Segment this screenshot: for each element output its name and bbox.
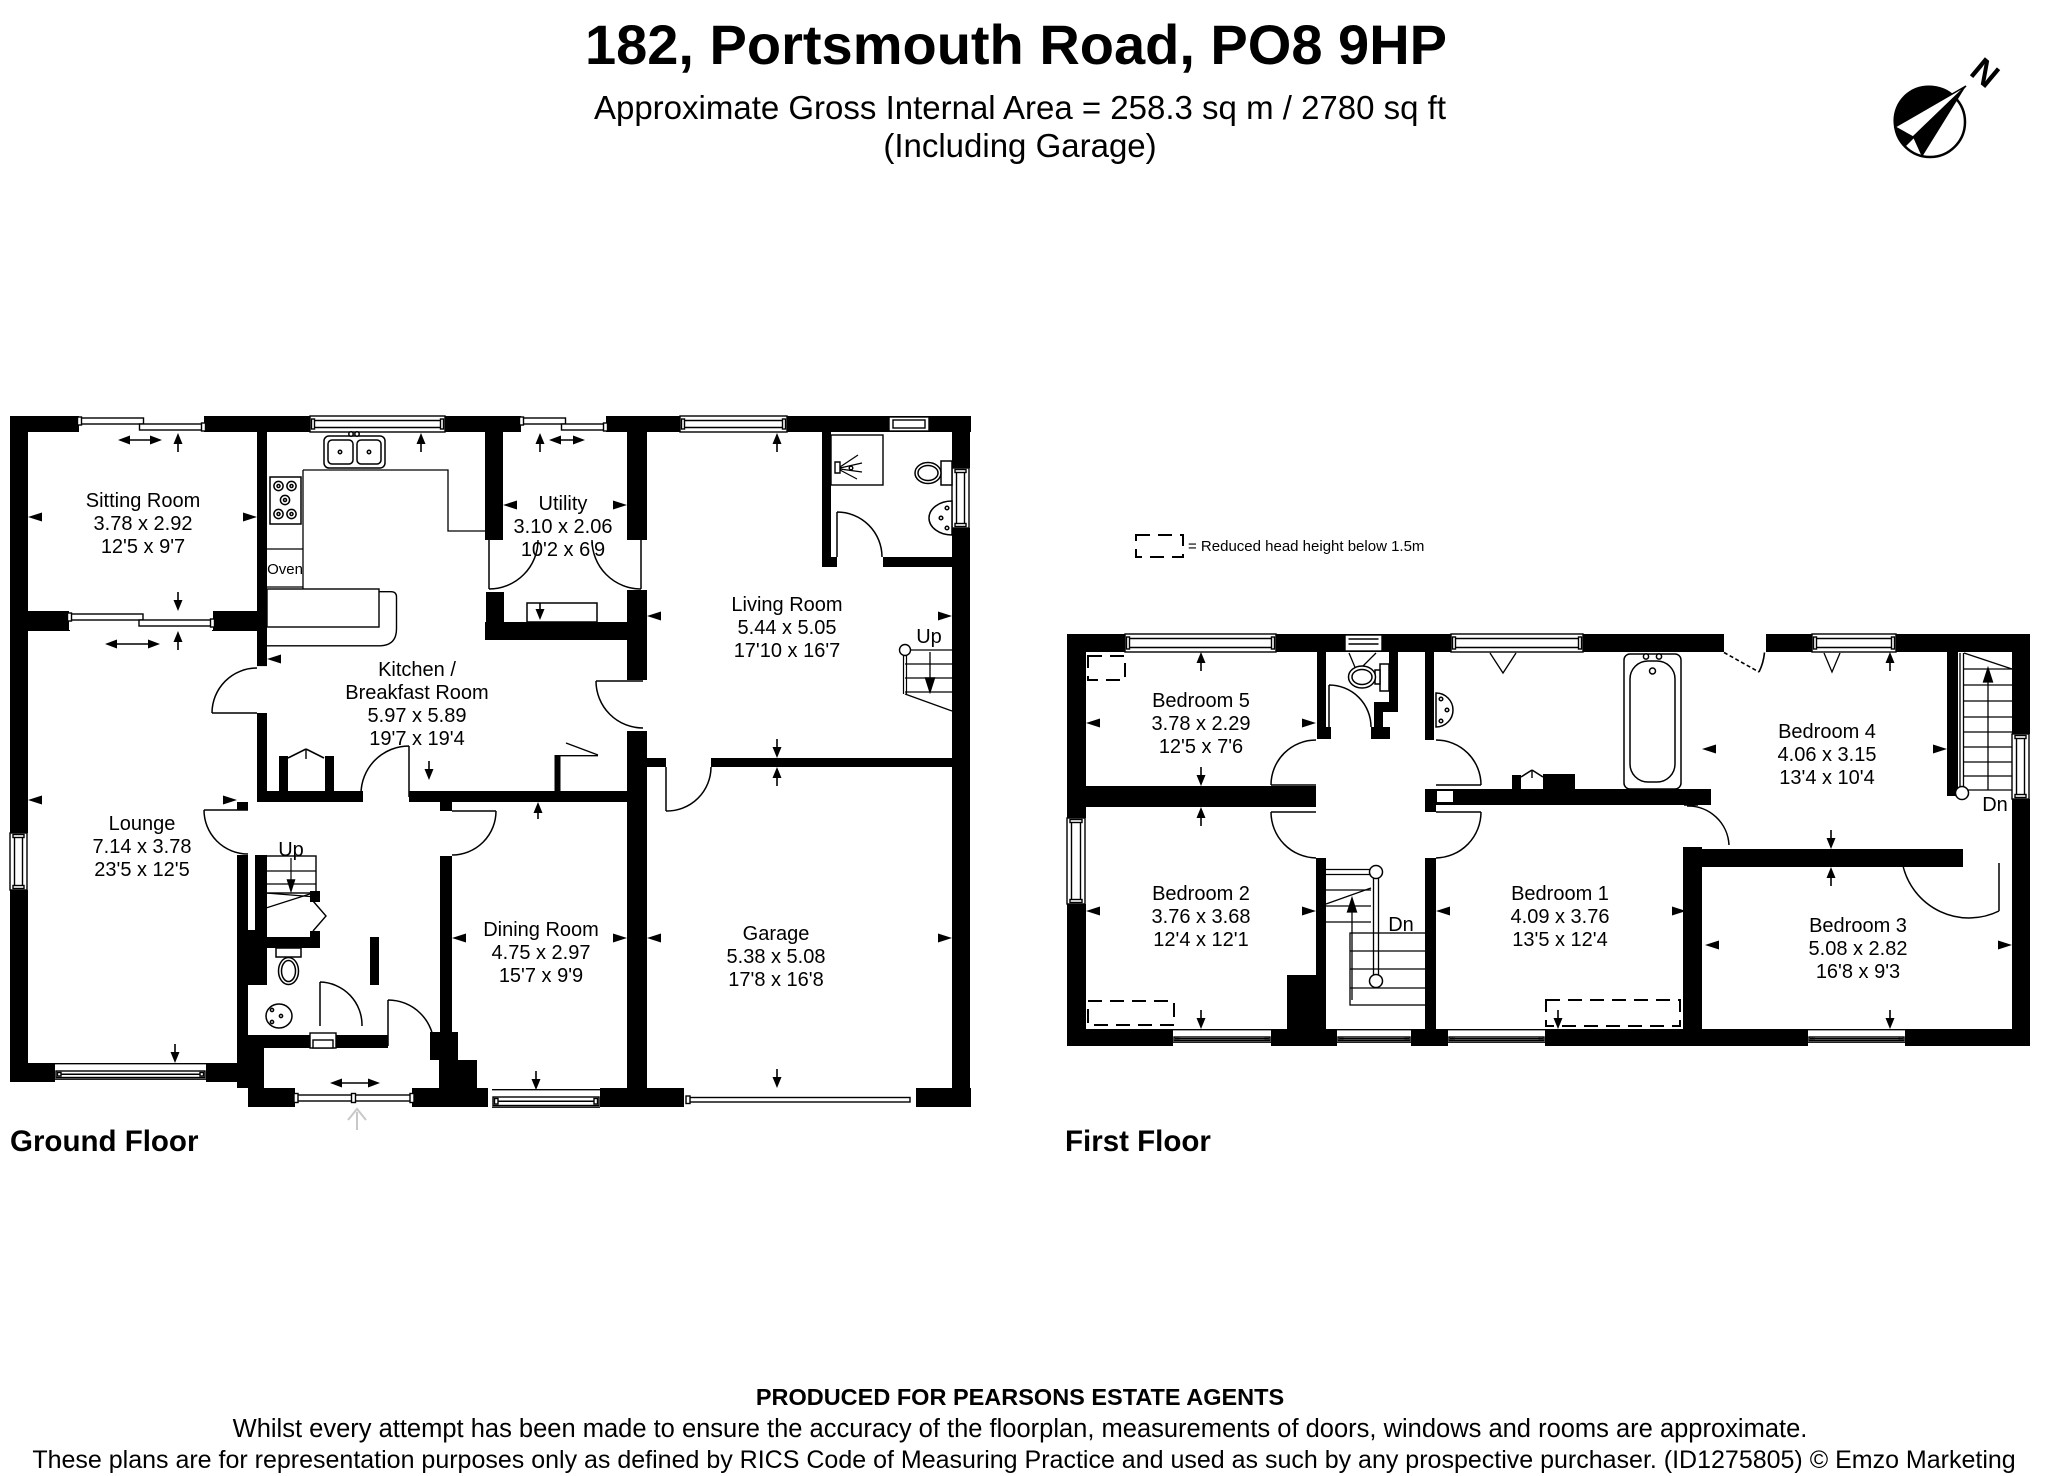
svg-text:182, Portsmouth Road, PO8 9HP: 182, Portsmouth Road, PO8 9HP: [585, 13, 1447, 76]
svg-text:15'7 x 9'9: 15'7 x 9'9: [499, 965, 583, 987]
svg-text:3.76 x 3.68: 3.76 x 3.68: [1152, 906, 1251, 928]
svg-text:These plans are for representa: These plans are for representation purpo…: [32, 1446, 2015, 1474]
svg-text:5.97 x 5.89: 5.97 x 5.89: [368, 705, 467, 727]
svg-text:Garage: Garage: [743, 923, 810, 945]
svg-text:12'4 x 12'1: 12'4 x 12'1: [1153, 929, 1249, 951]
svg-text:Up: Up: [916, 626, 942, 648]
svg-text:12'5 x 7'6: 12'5 x 7'6: [1159, 736, 1243, 758]
svg-text:Kitchen /: Kitchen /: [378, 659, 456, 681]
svg-text:First Floor: First Floor: [1065, 1125, 1211, 1158]
svg-text:Breakfast Room: Breakfast Room: [345, 682, 488, 704]
svg-text:4.09 x 3.76: 4.09 x 3.76: [1511, 906, 1610, 928]
svg-text:13'4 x 10'4: 13'4 x 10'4: [1779, 767, 1875, 789]
svg-text:Bedroom 3: Bedroom 3: [1809, 915, 1907, 937]
svg-text:17'8 x 16'8: 17'8 x 16'8: [728, 969, 824, 991]
svg-text:Sitting Room: Sitting Room: [86, 490, 201, 512]
svg-text:Whilst every attempt has been: Whilst every attempt has been made to en…: [233, 1415, 1808, 1443]
svg-text:Ground Floor: Ground Floor: [10, 1125, 199, 1158]
svg-text:Dn: Dn: [1982, 794, 2008, 816]
svg-text:5.44 x 5.05: 5.44 x 5.05: [738, 617, 837, 639]
svg-text:19'7 x 19'4: 19'7 x 19'4: [369, 728, 465, 750]
svg-text:PRODUCED FOR PEARSONS ESTATE A: PRODUCED FOR PEARSONS ESTATE AGENTS: [756, 1384, 1284, 1410]
svg-text:4.06 x 3.15: 4.06 x 3.15: [1778, 744, 1877, 766]
svg-text:Living Room: Living Room: [731, 594, 842, 616]
svg-text:3.10 x 2.06: 3.10 x 2.06: [514, 516, 613, 538]
svg-text:3.78 x 2.92: 3.78 x 2.92: [94, 513, 193, 535]
svg-text:Up: Up: [278, 839, 304, 861]
svg-text:Dining Room: Dining Room: [483, 919, 599, 941]
svg-text:5.38 x 5.08: 5.38 x 5.08: [727, 946, 826, 968]
svg-text:Approximate Gross Internal Are: Approximate Gross Internal Area = 258.3 …: [594, 89, 1446, 126]
svg-text:5.08 x 2.82: 5.08 x 2.82: [1809, 938, 1908, 960]
svg-text:23'5 x 12'5: 23'5 x 12'5: [94, 859, 190, 881]
svg-text:7.14 x 3.78: 7.14 x 3.78: [93, 836, 192, 858]
svg-text:16'8 x 9'3: 16'8 x 9'3: [1816, 961, 1900, 983]
svg-text:17'10 x 16'7: 17'10 x 16'7: [734, 640, 841, 662]
svg-text:= Reduced head height below 1.: = Reduced head height below 1.5m: [1188, 538, 1424, 555]
svg-text:Utility: Utility: [539, 493, 588, 515]
svg-text:Dn: Dn: [1388, 914, 1414, 936]
svg-text:4.75 x 2.97: 4.75 x 2.97: [492, 942, 591, 964]
svg-text:Bedroom 5: Bedroom 5: [1152, 690, 1250, 712]
svg-text:3.78 x 2.29: 3.78 x 2.29: [1152, 713, 1251, 735]
svg-text:Oven: Oven: [267, 561, 303, 578]
svg-text:Bedroom 4: Bedroom 4: [1778, 721, 1876, 743]
svg-text:Lounge: Lounge: [109, 813, 176, 835]
svg-text:10'2 x 6'9: 10'2 x 6'9: [521, 539, 605, 561]
svg-text:13'5 x 12'4: 13'5 x 12'4: [1512, 929, 1608, 951]
svg-text:(Including Garage): (Including Garage): [883, 127, 1156, 164]
svg-text:Bedroom 2: Bedroom 2: [1152, 883, 1250, 905]
svg-text:Bedroom 1: Bedroom 1: [1511, 883, 1609, 905]
svg-text:12'5 x 9'7: 12'5 x 9'7: [101, 536, 185, 558]
